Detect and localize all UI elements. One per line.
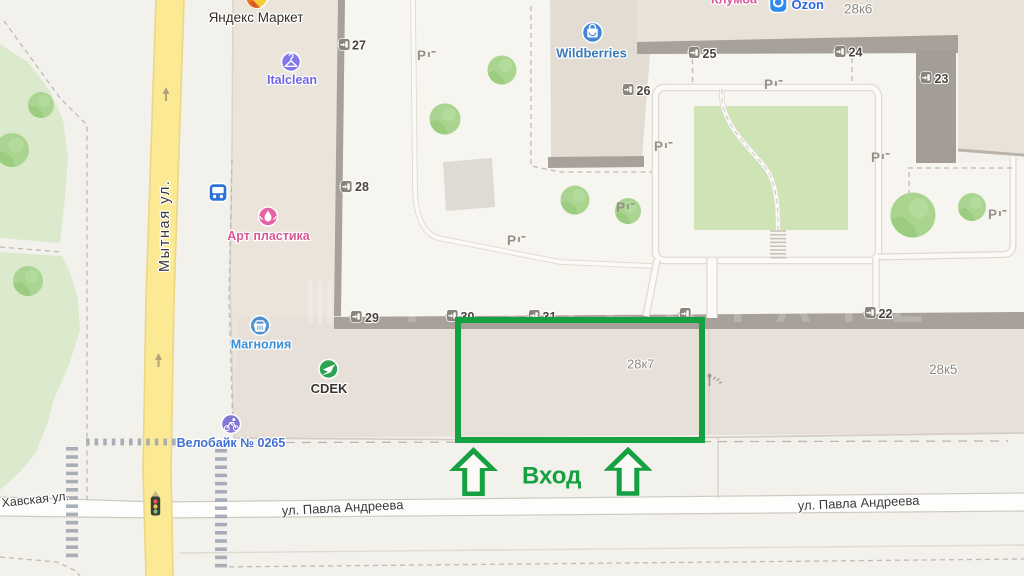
svg-text:25: 25 [703,47,717,61]
svg-text:P: P [507,233,516,248]
svg-text:CDEK: CDEK [311,381,348,396]
svg-text:Italclean: Italclean [267,73,317,87]
svg-text:23: 23 [935,72,949,86]
svg-text:28к5: 28к5 [929,362,957,377]
svg-text:28: 28 [355,180,369,194]
svg-text:ЧIPS.ESTATE: ЧIPS.ESTATE [344,277,949,333]
svg-text:Мытная ул.: Мытная ул. [157,179,173,272]
svg-text:Ozon: Ozon [792,0,825,12]
svg-text:P: P [654,139,663,154]
svg-text:28к6: 28к6 [844,2,872,17]
svg-text:P: P [764,77,773,92]
svg-text:24: 24 [849,46,863,60]
svg-text:28к7: 28к7 [627,357,654,372]
svg-text:Магнолия: Магнолия [231,338,292,352]
svg-text:29: 29 [365,311,379,325]
svg-text:22: 22 [879,307,893,321]
svg-text:P: P [417,48,426,63]
svg-text:26: 26 [637,84,651,98]
svg-text:Клумба: Клумба [711,0,758,7]
svg-text:Велобайк № 0265: Велобайк № 0265 [177,436,286,450]
svg-text:P: P [871,150,880,165]
svg-text:P: P [988,207,997,222]
svg-text:27: 27 [352,39,366,53]
svg-text:Вход: Вход [522,463,581,490]
svg-text:Wildberries: Wildberries [556,46,627,61]
svg-text:Яндекс Маркет: Яндекс Маркет [209,10,304,25]
svg-text:Арт пластика: Арт пластика [227,229,311,243]
svg-text:P: P [616,200,625,215]
